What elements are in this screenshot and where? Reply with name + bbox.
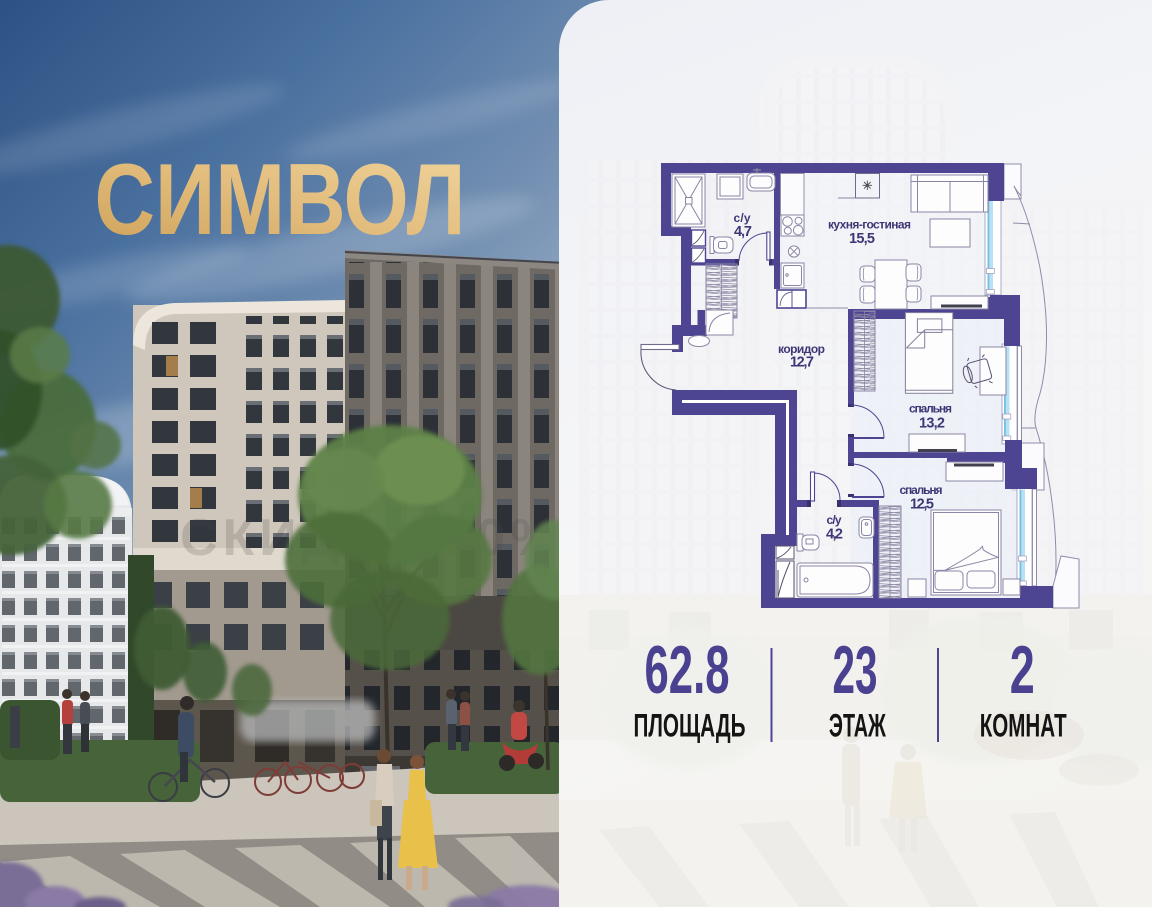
svg-text:23: 23 xyxy=(833,632,878,708)
svg-text:КОМНАТ: КОМНАТ xyxy=(980,708,1067,744)
svg-text:ЭТАЖ: ЭТАЖ xyxy=(829,708,886,744)
svg-text:ПЛОЩАДЬ: ПЛОЩАДЬ xyxy=(634,708,746,744)
svg-text:62.8: 62.8 xyxy=(645,632,730,708)
svg-text:2: 2 xyxy=(1010,632,1035,708)
